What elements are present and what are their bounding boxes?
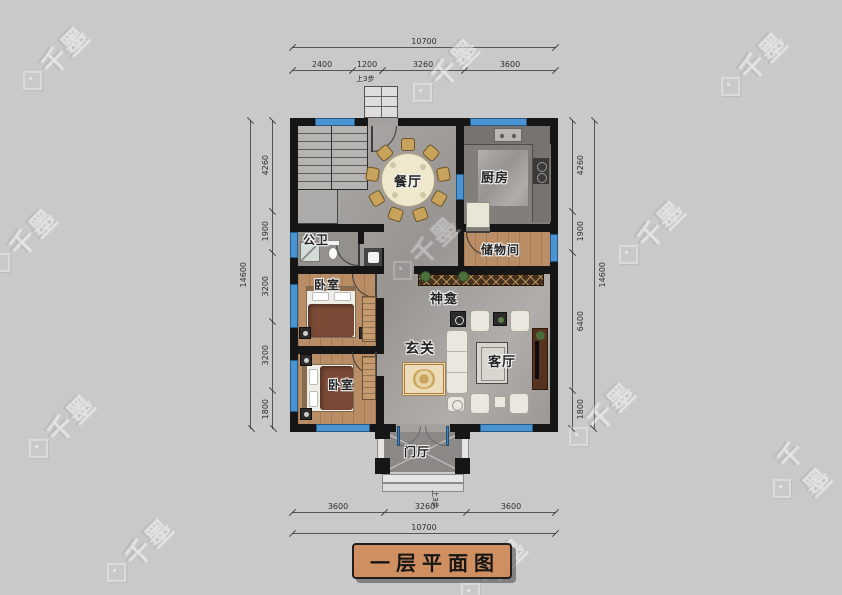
stair-divider: [331, 126, 332, 190]
dim-value: 3600: [501, 502, 521, 511]
armchair: [470, 393, 490, 414]
dim-bottom-segments: 3600 3260 3600: [292, 498, 556, 513]
side-table-small: [494, 396, 506, 408]
entry-steps: [382, 474, 464, 483]
dim-right-overall: 14600: [594, 120, 609, 429]
wall-bath-right: [358, 232, 364, 244]
watermark: 千墨: [19, 385, 102, 468]
watermark-text: 千墨: [0, 199, 64, 265]
dim-value: 10700: [411, 37, 436, 46]
dim-value: 4260: [261, 155, 270, 175]
room-label-porch: 门厅: [404, 443, 430, 460]
stair-landing: [298, 190, 338, 224]
room-label-kitchen: 厨房: [481, 167, 509, 186]
foyer-rug: [402, 362, 446, 396]
armchair: [509, 393, 529, 414]
room-label-living: 客厅: [488, 351, 516, 370]
window-kitchen-top: [470, 118, 527, 126]
dim-value: 4260: [576, 155, 585, 175]
watermark-text: 千墨: [766, 413, 842, 503]
porch-column: [375, 458, 390, 474]
window-bedroom-bottom: [316, 424, 370, 432]
dim-top-segments: 2400 1200 3260 3600: [292, 56, 556, 71]
drawing-title: 一层平面图: [364, 547, 500, 576]
watermark: 千墨: [0, 199, 64, 282]
staircase: [298, 126, 368, 190]
room-label-shrine: 神龛: [430, 288, 458, 307]
watermark-text: 千墨: [36, 385, 102, 451]
watermark-logo-icon: [721, 77, 740, 96]
porch-column: [455, 424, 470, 439]
steps-note-bottom: 上3步: [430, 490, 440, 508]
dim-bottom-overall: 10700: [292, 519, 556, 534]
dim-value: 1900: [261, 221, 270, 241]
watermark-logo-icon: [29, 439, 48, 458]
kitchen-stove: [533, 158, 549, 184]
watermark-logo-icon: [413, 83, 432, 102]
watermark-logo-icon: [773, 479, 791, 498]
wall-bedroom-hall-a: [376, 298, 384, 352]
room-label-dining: 餐厅: [394, 171, 422, 190]
dim-value: 14600: [598, 262, 607, 287]
watermark: 千墨: [749, 413, 842, 520]
pass-through-window: [456, 174, 464, 200]
watermark: 千墨: [13, 17, 96, 100]
bed-top: [306, 286, 356, 338]
wall-bedroom-hall-b: [376, 376, 384, 424]
plant-right: [458, 271, 469, 282]
watermark-logo-icon: [23, 71, 42, 90]
nightstand: [299, 327, 311, 339]
room-label-bedroom-top: 卧室: [314, 276, 340, 293]
dim-value: 3600: [328, 502, 348, 511]
bath-door-leaf: [358, 244, 360, 266]
toilet-bowl: [328, 247, 338, 260]
dim-value: 1800: [261, 399, 270, 419]
wall-kitchen-bottom-a: [456, 224, 466, 232]
dim-left-segments: 4260 1900 3200 3200 1800: [258, 120, 273, 429]
dim-value: 10700: [411, 523, 436, 532]
watermark-logo-icon: [619, 245, 638, 264]
porch-column: [455, 458, 470, 474]
dim-value: 2400: [312, 60, 332, 69]
floor-plan-sheet: 餐厅 厨房 公卫 储物间 卧室 卧室 神龛 玄关 客厅 门厅 上3步 上3步 1…: [0, 0, 842, 595]
armchair: [510, 310, 530, 332]
dim-value: 1900: [576, 221, 585, 241]
window-living-bottom: [480, 424, 533, 432]
dim-value: 3600: [500, 60, 520, 69]
nightstand: [300, 408, 312, 420]
entrance-door-leaf: [446, 426, 449, 446]
watermark-text: 千墨: [728, 23, 794, 89]
window-bathroom-left: [290, 232, 298, 258]
wash-basin-niche: [364, 248, 382, 266]
stool: [447, 396, 465, 412]
window-bedroom-top-left: [290, 284, 298, 328]
plant-left: [420, 271, 431, 282]
nightstand: [300, 354, 312, 366]
watermark: 千墨: [711, 23, 794, 106]
dim-value: 3200: [261, 276, 270, 296]
wardrobe-top: [362, 296, 376, 342]
watermark-logo-icon: [107, 563, 126, 582]
watermark-text: 千墨: [114, 509, 180, 575]
drawing-title-badge: 一层平面图: [352, 543, 512, 579]
dim-left-overall: 14600: [236, 120, 251, 429]
tv-cabinet: [532, 328, 548, 390]
window-bedroom-bottom-left: [290, 360, 298, 412]
dim-value: 6400: [576, 311, 585, 331]
dim-value: 3260: [413, 60, 433, 69]
shrine-altar: [418, 274, 544, 286]
dim-value: 3200: [261, 345, 270, 365]
watermark-text: 千墨: [626, 191, 692, 257]
wall-bedroom-top: [298, 266, 384, 274]
wardrobe-bottom: [362, 356, 376, 400]
back-steps: [364, 86, 398, 118]
wall-dining-kitchen-upper: [456, 126, 464, 174]
room-label-foyer: 玄关: [405, 338, 435, 358]
watermark: 千墨: [609, 191, 692, 274]
sofa: [446, 330, 468, 394]
side-table: [450, 311, 466, 327]
armchair: [470, 310, 490, 332]
side-table: [493, 312, 507, 326]
room-label-bathroom: 公卫: [303, 231, 329, 248]
back-door-opening: [368, 118, 398, 126]
kitchen-sink: [494, 128, 522, 142]
room-label-storage: 储物间: [481, 241, 520, 258]
dim-top-overall: 10700: [292, 33, 556, 48]
watermark-text: 千墨: [30, 17, 96, 83]
dim-value: 1800: [576, 399, 585, 419]
dim-value: 14600: [239, 262, 248, 287]
watermark-logo-icon: [0, 253, 10, 272]
entry-steps: [382, 483, 464, 492]
dim-right-segments: 4260 1900 6400 1800: [572, 120, 587, 429]
steps-note-top: 上3步: [356, 74, 374, 84]
watermark: 千墨: [97, 509, 180, 592]
porch-column: [375, 424, 390, 439]
dim-value: 1200: [357, 60, 377, 69]
wall-kitchen-bottom-b: [490, 224, 550, 232]
fridge: [466, 202, 490, 228]
window-top-left: [315, 118, 355, 126]
watermark-logo-icon: [461, 583, 480, 595]
room-label-bedroom-bottom: 卧室: [328, 376, 354, 393]
window-storage-right: [550, 234, 558, 262]
wall-shrine: [414, 266, 550, 274]
